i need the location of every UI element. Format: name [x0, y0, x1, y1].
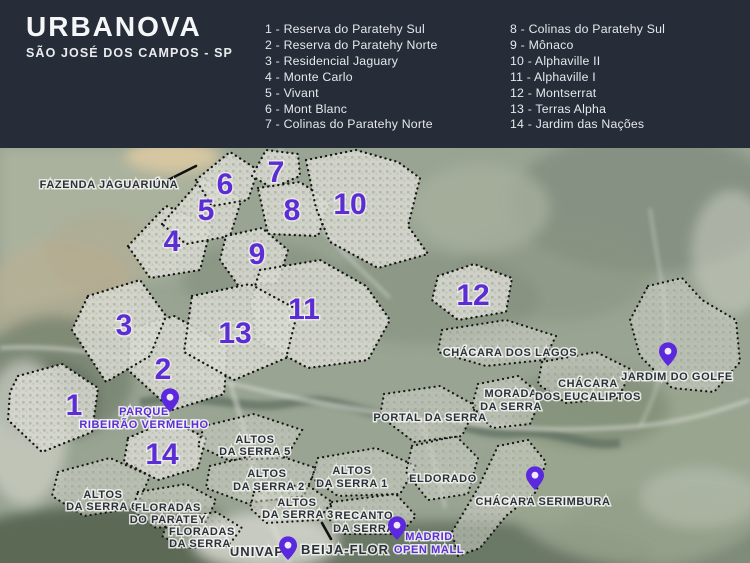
legend-item-13: 13 - Terras Alpha [510, 102, 665, 118]
label-altos1-line1: ALTOS [332, 465, 371, 477]
region-number-9: 9 [249, 238, 266, 271]
label-beija-flor: BEIJA-FLOR [301, 542, 389, 557]
label-altos5-line2: DA SERRA 5 [219, 446, 291, 458]
region-number-12: 12 [456, 279, 489, 312]
label-parque-line2: RIBEIRÃO VERMELHO [79, 418, 208, 431]
legend-item-1: 1 - Reserva do Paratehy Sul [265, 22, 438, 38]
legend-item-2: 2 - Reserva do Paratehy Norte [265, 38, 438, 54]
legend-item-6: 6 - Mont Blanc [265, 102, 438, 118]
label-altos3-line1: ALTOS [277, 497, 316, 509]
legend-item-3: 3 - Residencial Jaguary [265, 54, 438, 70]
label-floradas-serra-line1: FLORADAS [169, 526, 235, 538]
label-morada-line1: MORADA [484, 388, 537, 400]
title-block: URBANOVA SÃO JOSÉ DOS CAMPOS - SP [26, 13, 233, 60]
label-eucaliptos-line1: CHÁCARA [558, 377, 618, 390]
legend-column-1: 1 - Reserva do Paratehy Sul 2 - Reserva … [265, 22, 438, 133]
region-number-5: 5 [198, 194, 215, 227]
label-morada-line2: DA SERRA [480, 401, 542, 413]
label-altos5-line1: ALTOS [235, 434, 274, 446]
region-number-4: 4 [164, 225, 181, 258]
label-eucaliptos-line2: DOS EUCALIPTOS [535, 391, 641, 403]
page-subtitle: SÃO JOSÉ DOS CAMPOS - SP [26, 46, 233, 60]
label-jardim-do-golfe: JARDIM DO GOLFE [621, 371, 733, 383]
label-floradas-paratey-line1: FLORADAS [135, 502, 201, 514]
label-madrid-line2: OPEN MALL [394, 544, 464, 556]
region-number-7: 7 [268, 156, 285, 189]
label-recanto-line2: DA SERRA [333, 523, 395, 535]
header: URBANOVA SÃO JOSÉ DOS CAMPOS - SP 1 - Re… [0, 0, 750, 148]
label-altos2-line2: DA SERRA 2 [233, 481, 305, 493]
label-floradas-paratey-line2: DO PARATEY [130, 514, 207, 526]
region-number-14: 14 [145, 438, 179, 471]
satellite-map: 1 2 3 4 5 6 7 8 9 10 11 12 13 14 FAZENDA… [0, 148, 750, 563]
label-altos3-line2: DA SERRA 3 [262, 509, 334, 521]
label-altos6-line1: ALTOS [83, 489, 122, 501]
legend-item-12: 12 - Montserrat [510, 86, 665, 102]
page-title: URBANOVA [26, 13, 233, 41]
label-madrid-line1: MADRID [405, 531, 453, 543]
legend-item-10: 10 - Alphaville II [510, 54, 665, 70]
legend-item-7: 7 - Colinas do Paratehy Norte [265, 117, 438, 133]
label-altos6-line2: DA SERRA 6 [66, 501, 138, 513]
legend-item-9: 9 - Mônaco [510, 38, 665, 54]
region-number-2: 2 [155, 353, 172, 386]
region-number-3: 3 [116, 309, 133, 342]
label-recanto-line1: RECANTO [335, 510, 393, 522]
label-fazenda-jaguariuna: FAZENDA JAGUARIÚNA [40, 178, 179, 191]
region-number-10: 10 [333, 188, 366, 221]
legend-item-5: 5 - Vivant [265, 86, 438, 102]
map-image: 1 2 3 4 5 6 7 8 9 10 11 12 13 14 FAZENDA… [0, 148, 750, 563]
region-number-6: 6 [217, 168, 234, 201]
label-altos2-line1: ALTOS [247, 468, 286, 480]
region-number-1: 1 [66, 389, 83, 422]
label-floradas-serra-line2: DA SERRA [169, 538, 231, 550]
region-number-11: 11 [288, 293, 320, 326]
legend-item-14: 14 - Jardim das Nações [510, 117, 665, 133]
label-parque-line1: PARQUE [119, 406, 169, 418]
legend-item-11: 11 - Alphaville I [510, 70, 665, 86]
label-chacara-dos-lagos: CHÁCARA DOS LAGOS [443, 346, 577, 359]
legend-item-4: 4 - Monte Carlo [265, 70, 438, 86]
label-chacara-serimbura: CHÁCARA SERIMBURA [475, 495, 610, 508]
label-portal-da-serra: PORTAL DA SERRA [373, 412, 486, 424]
region-number-8: 8 [284, 194, 301, 227]
legend-column-2: 8 - Colinas do Paratehy Sul 9 - Mônaco 1… [510, 22, 665, 133]
region-number-13: 13 [218, 317, 251, 350]
label-univap: UNIVAP [230, 544, 284, 559]
legend-item-8: 8 - Colinas do Paratehy Sul [510, 22, 665, 38]
urbanova-map-infographic: URBANOVA SÃO JOSÉ DOS CAMPOS - SP 1 - Re… [0, 0, 750, 563]
label-altos1-line2: DA SERRA 1 [316, 478, 388, 490]
label-eldorado: ELDORADO [409, 473, 477, 485]
